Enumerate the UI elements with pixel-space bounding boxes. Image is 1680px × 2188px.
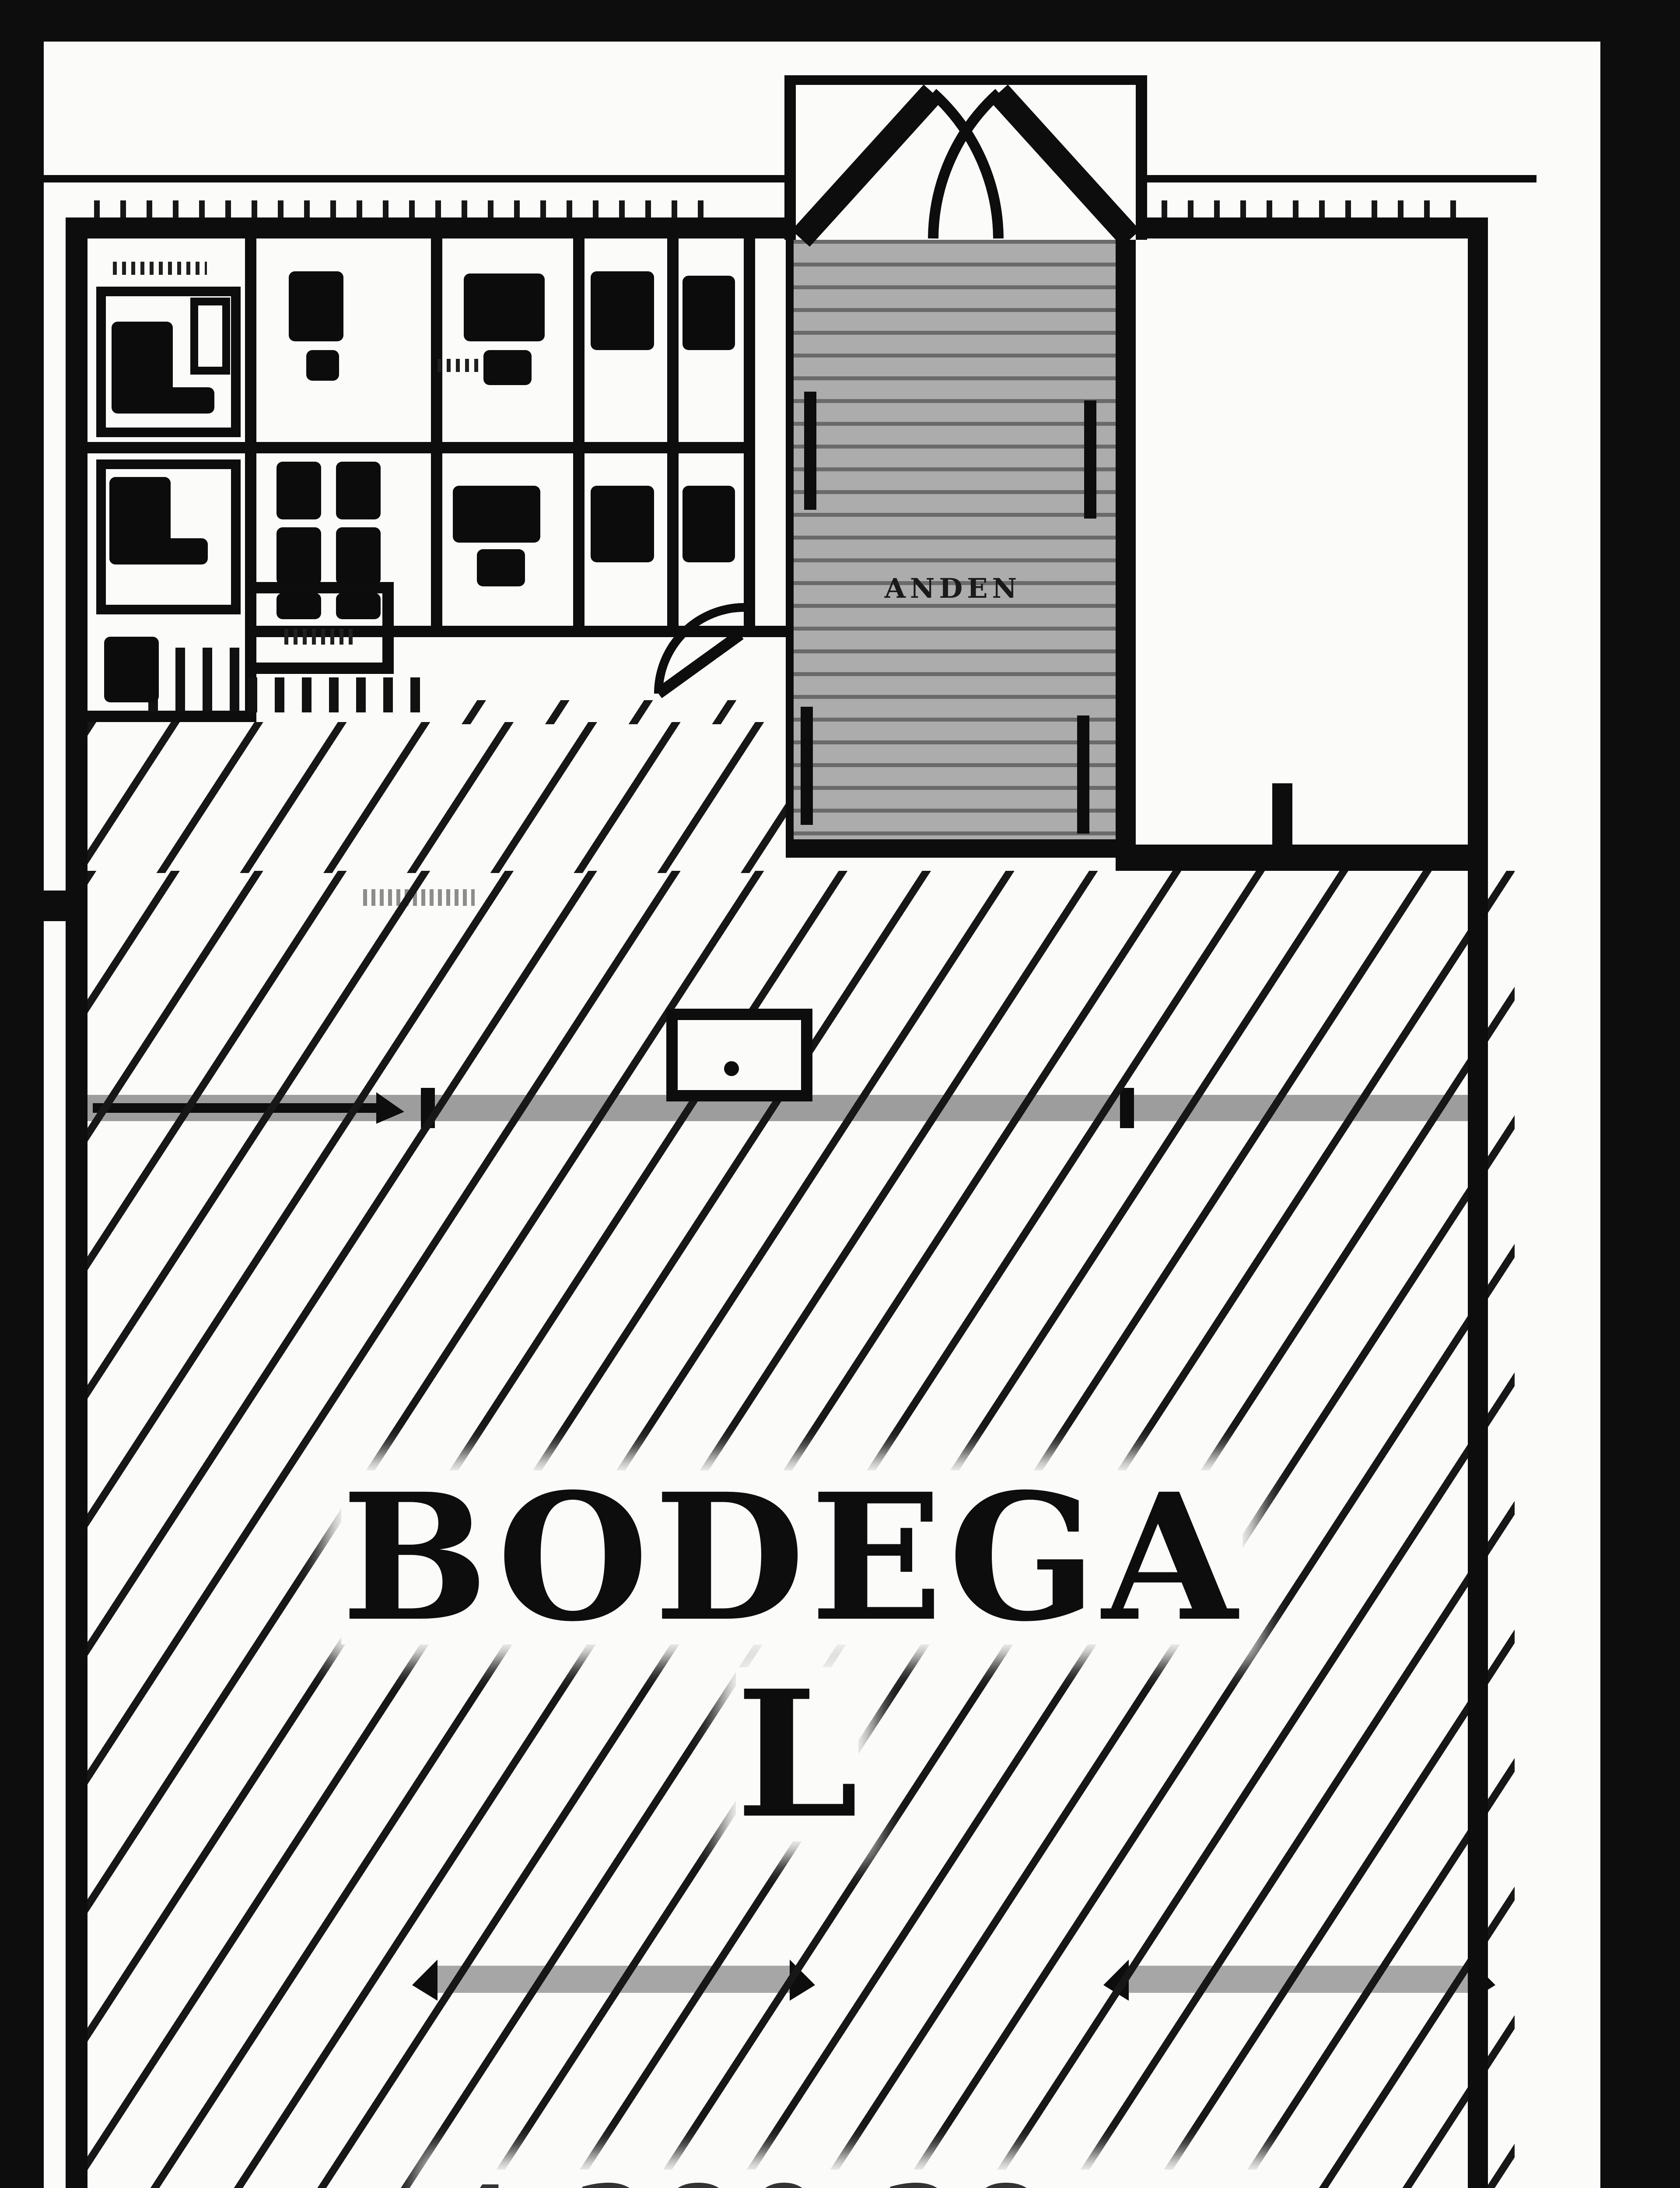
area-label-text: 4,389.38 M2. (437, 2159, 1052, 2188)
area-label: 4,389.38 M2. (437, 2170, 1266, 2188)
door-swing-icon (658, 607, 745, 694)
double-door-icon (784, 75, 1147, 240)
scan-frame-right (1600, 0, 1680, 2188)
warehouse-title: BODEGA (341, 1470, 1242, 1645)
warehouse-title-text: BODEGA (341, 1455, 1242, 1660)
scan-frame-top (0, 0, 1680, 42)
blueprint-scan: { "drawing": { "title": { "line1": "BODE… (0, 0, 1680, 2188)
warehouse-title-letter-text: L (736, 1652, 858, 1857)
warehouse-title-letter: L (736, 1667, 858, 1841)
door-symbols (0, 0, 1680, 2188)
scan-frame-left (0, 0, 44, 2188)
